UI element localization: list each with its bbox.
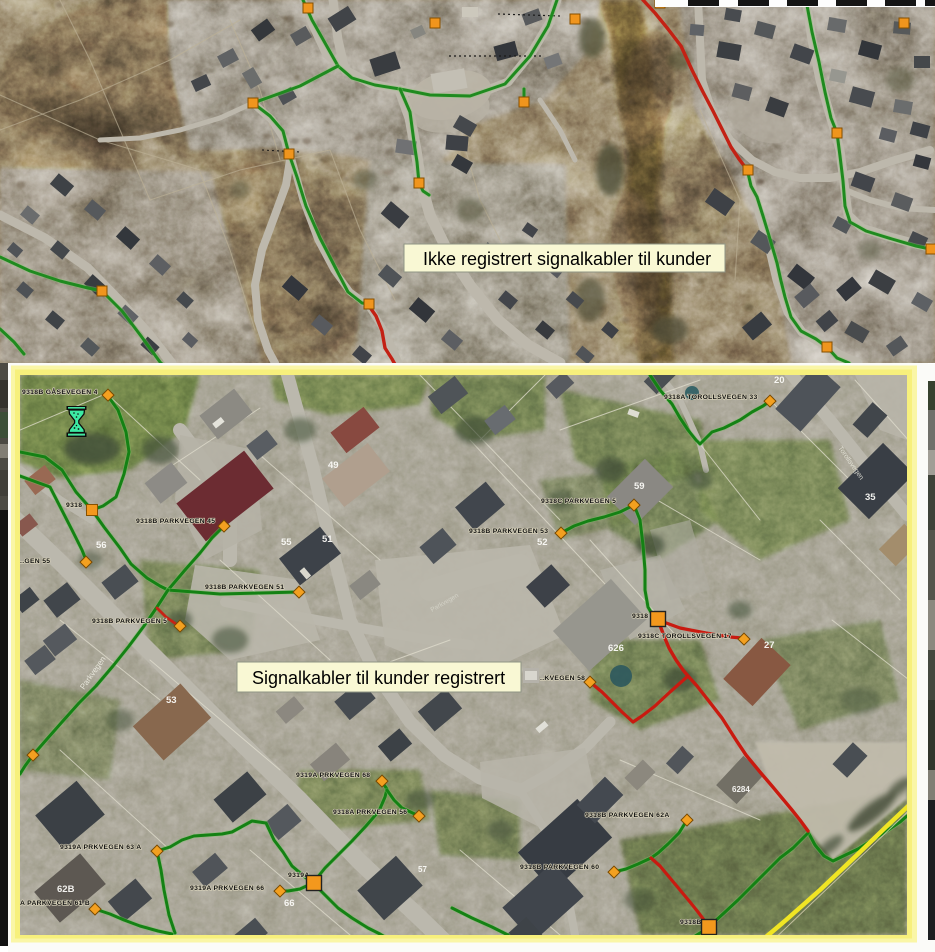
svg-text:Ikke registrert signalkabler t: Ikke registrert signalkabler til kunder (423, 249, 711, 269)
svg-text:Signalkabler til kunder regist: Signalkabler til kunder registrert (252, 668, 505, 688)
